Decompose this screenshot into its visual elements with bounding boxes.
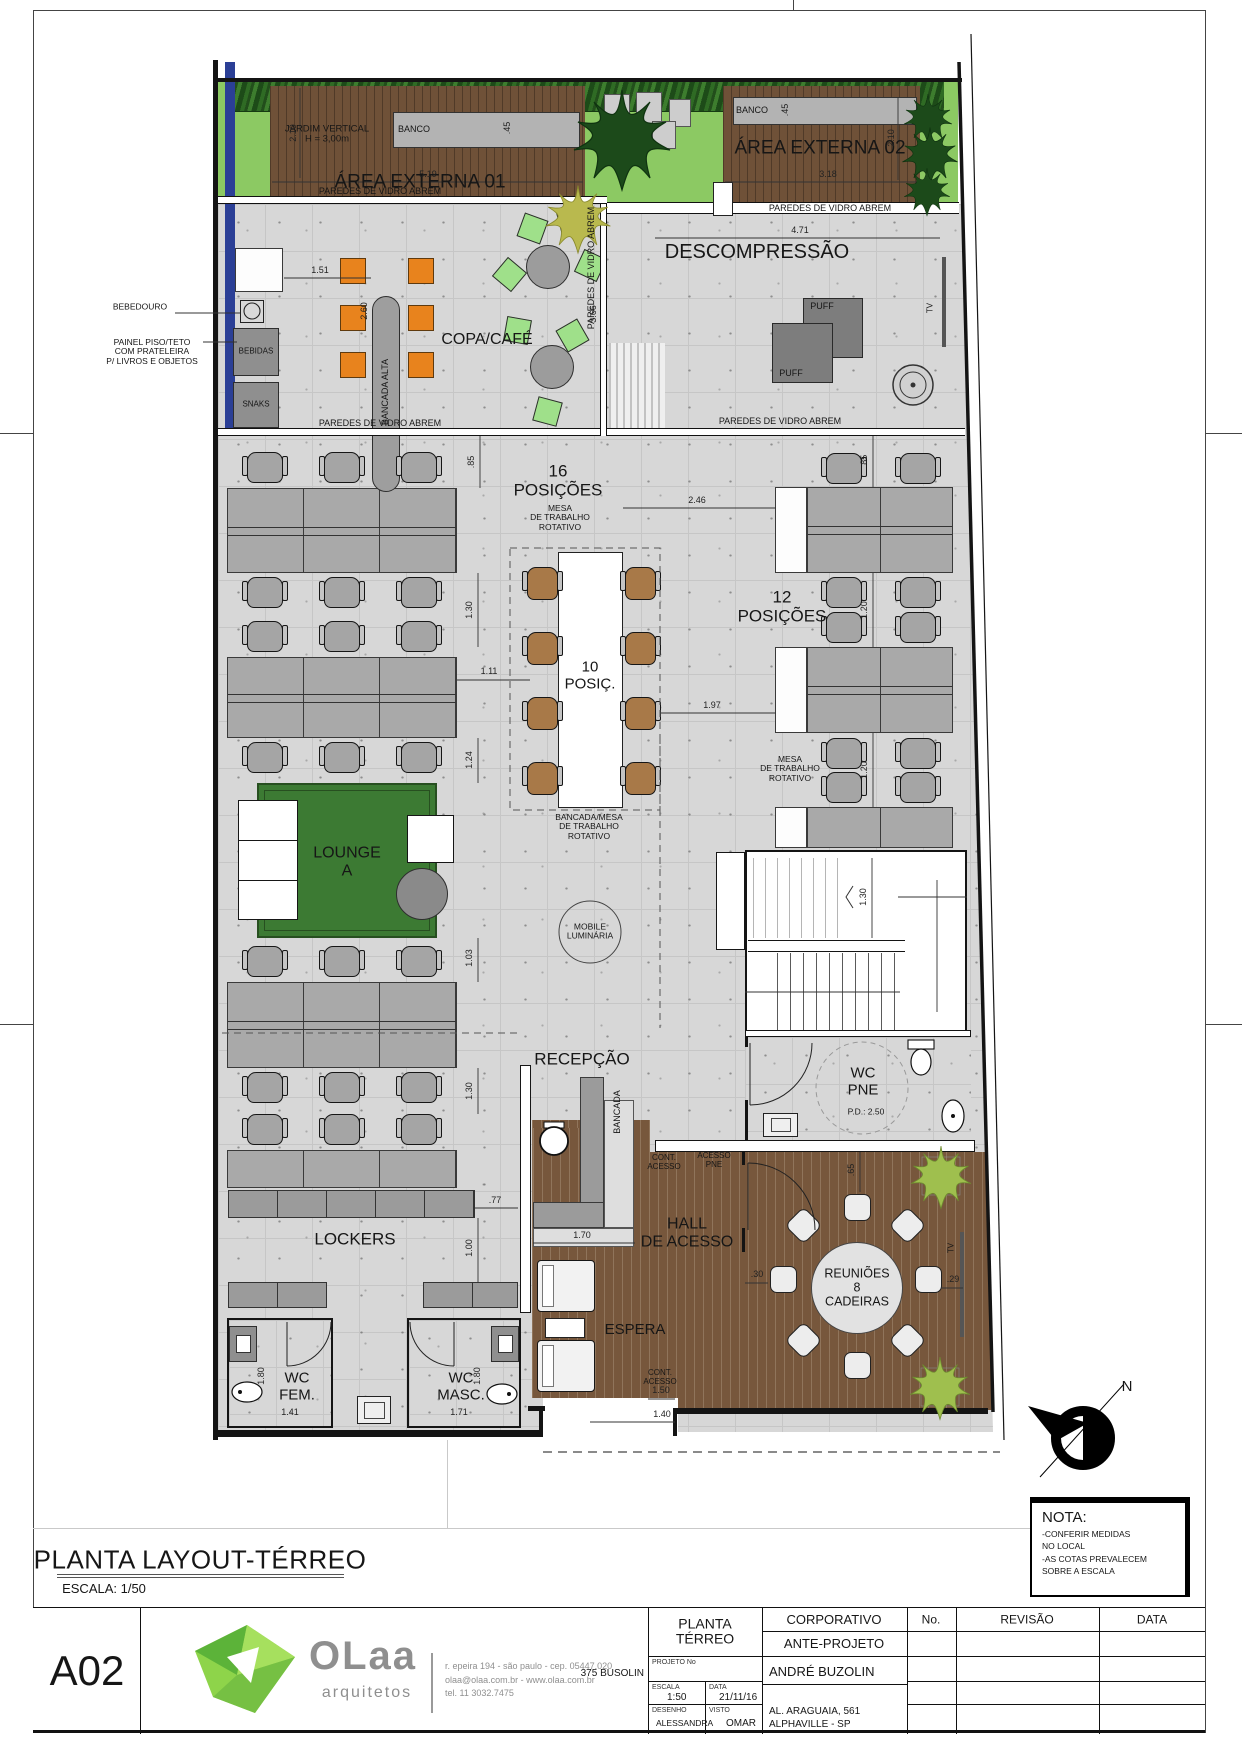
- office-chair: [324, 1114, 360, 1145]
- office-chair: [324, 1072, 360, 1103]
- dim: 1.30: [465, 1082, 475, 1100]
- dim: 5.19: [419, 170, 437, 180]
- office-chair: [247, 742, 283, 773]
- dim: 1.03: [465, 949, 475, 967]
- label-cont-acesso-1: CONT. ACESSO: [647, 1154, 680, 1172]
- stool: [340, 258, 366, 284]
- dim: 4.71: [791, 226, 809, 236]
- wc-pne-wall-top: [745, 1030, 971, 1037]
- label-hall: HALL DE ACESSO: [641, 1215, 733, 1250]
- office-chair: [401, 1114, 437, 1145]
- olaa-logo-name: OLaa: [309, 1634, 417, 1678]
- dim: 3.18: [819, 170, 837, 180]
- label-pd: P.D.: 2.50: [848, 1107, 885, 1116]
- meeting-chair-brown: [625, 697, 656, 730]
- tb-visto-label: VISTO: [709, 1707, 730, 1714]
- office-chair: [826, 738, 862, 769]
- meeting-chair-brown: [527, 567, 558, 600]
- label-wc-fem: WC FEM.: [279, 1371, 315, 1404]
- waiting-armchair: [537, 1340, 595, 1392]
- title-block: A02 OLaa arquitetos r. epeira 194 - são …: [33, 1607, 1205, 1733]
- dim: 1.97: [703, 701, 721, 711]
- tb-visto: OMAR: [726, 1718, 756, 1729]
- dim: 1.50: [652, 1386, 670, 1396]
- title-underline: [57, 1577, 344, 1578]
- dim: .65: [847, 1164, 857, 1177]
- tv-wall-2: [960, 1232, 964, 1337]
- stepping-stone: [604, 94, 630, 128]
- office-chair: [401, 577, 437, 608]
- meeting-chair-brown: [625, 762, 656, 795]
- label-espera: ESPERA: [605, 1322, 666, 1339]
- dim: .45: [503, 122, 513, 135]
- tb-desenho: ALESSANDRA: [656, 1718, 713, 1728]
- dim: .30: [751, 1270, 764, 1280]
- label-banco-2: BANCO: [736, 106, 768, 116]
- office-chair: [826, 577, 862, 608]
- wall-left: [213, 60, 218, 1440]
- label-bebidas: BEBIDAS: [239, 348, 274, 357]
- stair-rail: [748, 940, 905, 952]
- dim: .85: [467, 456, 477, 469]
- label-paredes-vidro-1: PAREDES DE VIDRO ABREM: [319, 187, 441, 197]
- waiting-table: [545, 1318, 585, 1338]
- waiting-armchair: [537, 1260, 595, 1312]
- stool: [340, 352, 366, 378]
- meeting-chair: [770, 1266, 797, 1293]
- label-paredes-vidro-4: PAREDES DE VIDRO ABREM: [719, 417, 841, 427]
- office-chair: [247, 621, 283, 652]
- label-bancada-alta: BANCADA ALTA: [381, 359, 391, 425]
- fold-mark: [0, 1024, 33, 1025]
- meeting-chair: [844, 1352, 871, 1379]
- label-mesa-rotativo-1: MESA DE TRABALHO ROTATIVO: [530, 504, 590, 532]
- reception-partition: [520, 1065, 531, 1313]
- tb-desenho-label: DESENHO: [652, 1707, 687, 1714]
- nota-heading: NOTA:: [1042, 1509, 1185, 1526]
- office-chair: [324, 946, 360, 977]
- desk-storage: [775, 487, 807, 573]
- label-recepcao: RECEPÇÃO: [534, 1051, 629, 1070]
- dim: .45: [781, 104, 791, 117]
- desk-bank: [227, 982, 457, 1068]
- label-puff-1: PUFF: [810, 302, 834, 312]
- drawing-scale: ESCALA: 1/50: [62, 1582, 146, 1596]
- meeting-wall: [742, 1152, 745, 1165]
- office-chair: [401, 1072, 437, 1103]
- wc-pne-wall-left: [745, 1100, 748, 1140]
- meeting-chair: [915, 1266, 942, 1293]
- office-chair: [826, 453, 862, 484]
- meeting-chair-brown: [625, 632, 656, 665]
- dim: .85: [860, 455, 870, 468]
- callout-painel: PAINEL PISO/TETO COM PRATELEIRA P/ LIVRO…: [106, 338, 197, 366]
- fold-mark: [1205, 433, 1242, 434]
- office-chair: [900, 453, 936, 484]
- drawing-sheet: JARDIM VERTICAL H = 3,00m BANCO BANCO ÁR…: [0, 0, 1242, 1754]
- nota-body: -CONFERIR MEDIDAS NO LOCAL -AS COTAS PRE…: [1042, 1528, 1185, 1577]
- office-chair: [247, 1072, 283, 1103]
- glass-wall-copa: [218, 428, 965, 436]
- lockers-row: [423, 1282, 518, 1308]
- wall-entry-step: [673, 1408, 677, 1436]
- meeting-chair-brown: [527, 762, 558, 795]
- bebedouro-unit: [240, 300, 264, 323]
- cafe-table: [526, 245, 570, 289]
- label-descompressao: DESCOMPRESSÃO: [665, 241, 849, 263]
- dim: 2.10: [887, 129, 897, 147]
- wc-fem-sink-cabinet: [229, 1326, 257, 1362]
- tb-cliente: ANDRÉ BUZOLIN: [769, 1664, 874, 1679]
- lounge-side-table: [407, 815, 454, 863]
- wc-pne-basin-counter: [763, 1113, 798, 1137]
- meeting-chair-brown: [527, 697, 558, 730]
- tb-endereco: AL. ARAGUAIA, 561 ALPHAVILLE - SP: [769, 1706, 860, 1731]
- dim: 1.41: [281, 1408, 299, 1418]
- lounge-sofa: [238, 800, 298, 920]
- label-banco-1: BANCO: [398, 125, 430, 135]
- wc-masc-sink-cabinet: [491, 1326, 519, 1362]
- label-tv-1: TV: [927, 303, 936, 313]
- tb-escala-label: ESCALA: [652, 1684, 680, 1691]
- stool: [408, 258, 434, 284]
- stool: [408, 305, 434, 331]
- wall-top: [213, 78, 962, 82]
- olaa-logo-icon: [190, 1622, 300, 1717]
- office-chair: [900, 577, 936, 608]
- meeting-wall: [742, 1228, 745, 1252]
- label-mobile-luminaria: MOBILE LUMINÁRIA: [567, 923, 613, 942]
- office-chair: [900, 738, 936, 769]
- pivot-door: [713, 182, 733, 216]
- olaa-address: r. epeira 194 - são paulo - cep. 05447.0…: [445, 1660, 612, 1701]
- page-border-top: [33, 10, 1205, 11]
- office-chair: [324, 621, 360, 652]
- tb-rev-data: DATA: [1137, 1613, 1167, 1626]
- office-chair: [900, 612, 936, 643]
- dim: 1.70: [573, 1231, 591, 1241]
- sheet-number: A02: [50, 1648, 125, 1694]
- dim: 1.20: [860, 601, 870, 619]
- fold-mark: [1205, 1024, 1242, 1025]
- lockers-row: [228, 1190, 475, 1218]
- office-chair: [247, 946, 283, 977]
- fold-line: [447, 1440, 448, 1528]
- corridor-sink: [357, 1396, 391, 1424]
- dim: 1.30: [465, 601, 475, 619]
- tb-drawing-name: PLANTA TÉRREO: [676, 1617, 734, 1648]
- dim: 2.60: [360, 302, 370, 320]
- desk-bank: [227, 657, 457, 738]
- label-area-externa-02: ÁREA EXTERNA 02: [734, 139, 905, 160]
- office-chair: [401, 452, 437, 483]
- dim: .29: [947, 1275, 960, 1285]
- office-chair: [247, 452, 283, 483]
- dim: 1.20: [860, 761, 870, 779]
- label-acesso-pne: ACESSO PNE: [697, 1152, 730, 1170]
- label-tv-2: TV: [948, 1243, 957, 1253]
- dim: 1.00: [465, 1239, 475, 1257]
- label-12-posicoes: 12 POSIÇÕES: [738, 588, 827, 625]
- dim: 1.71: [450, 1408, 468, 1418]
- office-chair: [401, 742, 437, 773]
- label-wc-pne: WC PNE: [848, 1066, 879, 1099]
- dim: 1.40: [653, 1410, 671, 1420]
- desk-bank: [807, 647, 953, 733]
- curtain: [609, 343, 665, 430]
- desk-storage: [775, 807, 807, 848]
- stepping-stone: [652, 121, 676, 149]
- fold-mark: [793, 0, 794, 10]
- dim: 2.46: [688, 496, 706, 506]
- nota-box: NOTA: -CONFERIR MEDIDAS NO LOCAL -AS COT…: [1030, 1497, 1190, 1597]
- tb-tipo: CORPORATIVO: [786, 1613, 881, 1627]
- glass-wall-area1: [218, 196, 607, 204]
- office-chair: [324, 452, 360, 483]
- tb-rev-no: No.: [922, 1613, 941, 1626]
- wc-pne-wall-left: [745, 1037, 748, 1047]
- office-chair: [826, 772, 862, 803]
- dim: 1.80: [473, 1367, 483, 1385]
- label-copa-cafe: COPA/CAFÉ: [441, 331, 532, 349]
- tb-escala: 1:50: [667, 1692, 686, 1703]
- lounge-round-table: [396, 868, 448, 920]
- tb-rev-revisao: REVISÃO: [1000, 1613, 1053, 1626]
- fold-mark: [0, 433, 33, 434]
- label-mesa-rotativo-2: MESA DE TRABALHO ROTATIVO: [760, 755, 820, 783]
- stair-vestibule: [716, 852, 745, 950]
- drawing-title: PLANTA LAYOUT-TÉRREO: [34, 1546, 367, 1575]
- label-north: N: [1122, 1379, 1133, 1396]
- meeting-chair-brown: [527, 632, 558, 665]
- tb-data: 21/11/16: [719, 1692, 757, 1703]
- wall-bottom-right: [675, 1408, 988, 1414]
- tb-projeto-label: PROJETO No: [652, 1659, 696, 1666]
- dim: 1.24: [465, 751, 475, 769]
- page-border-right: [1205, 10, 1206, 1733]
- office-chair: [247, 1114, 283, 1145]
- dim: 1.11: [481, 667, 498, 677]
- office-chair: [401, 621, 437, 652]
- office-chair: [324, 742, 360, 773]
- desk-bank: [807, 487, 953, 573]
- office-chair: [324, 577, 360, 608]
- desk-bank: [227, 488, 457, 573]
- label-bancada-mesa: BANCADA/MESA DE TRABALHO ROTATIVO: [555, 813, 623, 841]
- label-lockers: LOCKERS: [314, 1231, 395, 1250]
- office-chair: [247, 577, 283, 608]
- wall-bottom-left: [213, 1430, 543, 1437]
- page-border-left: [33, 10, 34, 1733]
- copa-cabinet: [235, 248, 283, 292]
- label-16-posicoes: 16 POSIÇÕES: [514, 462, 603, 499]
- dim: 2.10: [289, 124, 299, 142]
- stair-upper-run: [753, 858, 842, 938]
- label-puff-2: PUFF: [779, 369, 803, 379]
- desk-storage: [775, 647, 807, 733]
- north-compass: [1028, 1384, 1124, 1477]
- stool: [408, 352, 434, 378]
- fold-line: [33, 1528, 1030, 1529]
- meeting-chair-brown: [625, 567, 656, 600]
- wall-entry-step: [539, 1406, 543, 1436]
- glass-wall-divider: [600, 204, 607, 436]
- office-chair: [900, 772, 936, 803]
- desk-bank: [807, 807, 953, 848]
- tb-data-label: DATA: [709, 1684, 727, 1691]
- stair-lower-run: [777, 953, 900, 1030]
- dim: .77: [489, 1196, 502, 1206]
- dim: 1.80: [257, 1367, 267, 1385]
- dim: 1.51: [311, 266, 329, 276]
- office-chair: [826, 612, 862, 643]
- reception-wood-floor: [533, 1128, 580, 1203]
- office-chair: [401, 946, 437, 977]
- label-lounge: LOUNGE A: [313, 844, 381, 879]
- desk-bank: [227, 1150, 457, 1188]
- tb-fase: ANTE-PROJETO: [784, 1637, 884, 1651]
- label-bancada: BANCADA: [613, 1090, 623, 1134]
- reception-counter-h: [533, 1202, 604, 1228]
- label-paredes-vidro-2: PAREDES DE VIDRO ABREM: [769, 204, 891, 214]
- tb-projeto: 375 BUSOLIN: [581, 1668, 644, 1679]
- tv-wall-1: [942, 257, 946, 347]
- label-reunioes: REUNIÕES 8 CADEIRAS: [824, 1267, 889, 1308]
- lockers-row: [228, 1282, 327, 1308]
- olaa-logo-tagline: arquitetos: [322, 1684, 412, 1702]
- meeting-chair: [844, 1194, 871, 1221]
- dim: 3.66: [589, 305, 599, 323]
- label-snaks: SNAKS: [242, 401, 269, 410]
- dim: 1.30: [859, 888, 869, 906]
- label-10-posicoes: 10 POSIÇ.: [565, 660, 616, 693]
- callout-bebedouro: BEBEDOURO: [113, 302, 167, 311]
- wc-pne-wall-bottom: [655, 1140, 975, 1152]
